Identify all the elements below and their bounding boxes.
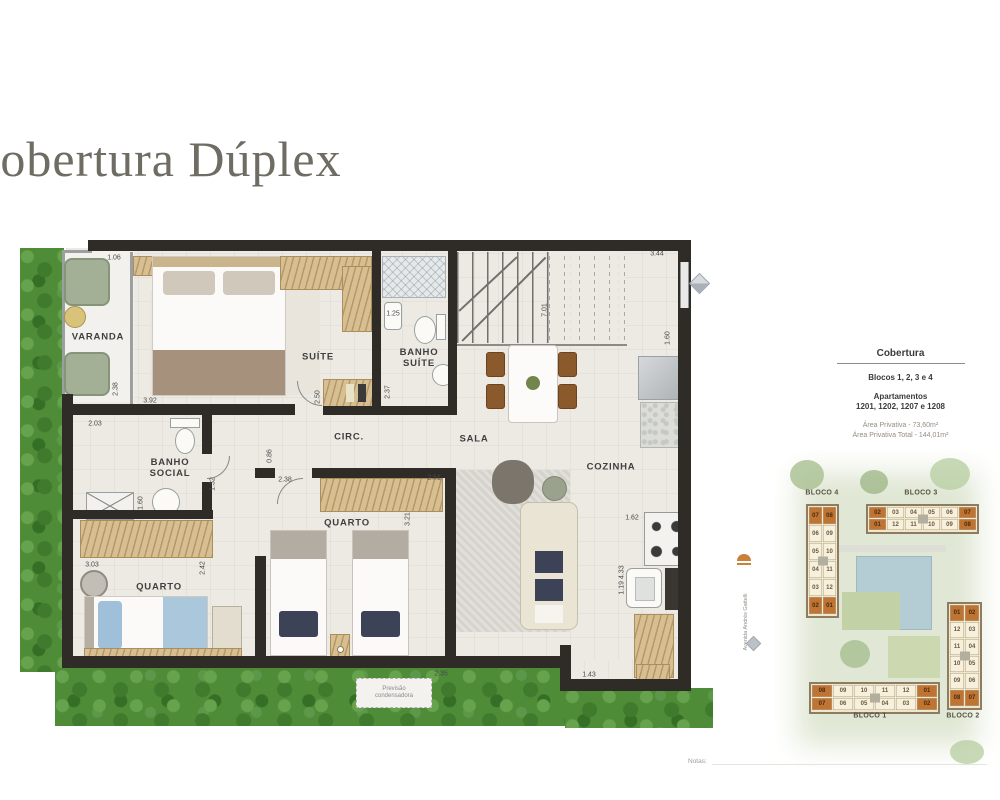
- dimension-label: 2.35: [434, 671, 448, 678]
- wardrobe-quarto-1: [80, 520, 213, 558]
- fridge: [638, 356, 680, 400]
- path: [838, 545, 946, 552]
- wall-bottom-right: [560, 679, 691, 691]
- siteplan-marker-icon: [737, 554, 751, 561]
- dining-chair: [558, 384, 577, 409]
- condenser-note: Previsão condensadora: [356, 678, 432, 708]
- toilet-tank: [170, 418, 200, 428]
- info-title: Cobertura: [828, 348, 973, 359]
- siteplan-row: 0102: [950, 605, 979, 621]
- siteplan-bloco-2: 010212031104100509060807: [947, 602, 982, 710]
- unit-bloco-3-03: 03: [887, 507, 904, 518]
- bed-blanket: [153, 350, 285, 395]
- room-label-suite: SUÍTE: [302, 352, 334, 363]
- grass-bottom-right: [565, 688, 713, 728]
- wall-banho-suite-left: [372, 251, 381, 415]
- siteplan-label-bloco-1: BLOCO 1: [853, 713, 886, 720]
- side-table-plant: [542, 476, 567, 501]
- room-label-varanda: VARANDA: [72, 332, 124, 343]
- bed-blanket: [353, 531, 408, 559]
- dimension-label: 3.03: [85, 562, 99, 569]
- unit-bloco-4-01: 01: [823, 597, 836, 614]
- grass-bottom: [55, 668, 567, 726]
- unit-bloco-4-12: 12: [823, 579, 836, 596]
- tree: [840, 640, 870, 668]
- unit-bloco-2-01: 01: [950, 605, 964, 621]
- unit-bloco-2-02: 02: [965, 605, 979, 621]
- siteplan-row: 1203: [950, 622, 979, 638]
- dimension-label: 0.86: [267, 449, 274, 463]
- armchair: [492, 460, 534, 504]
- dimension-label: 2.03: [88, 421, 102, 428]
- notes-label: Notas:: [688, 758, 707, 765]
- block-core: [918, 515, 928, 524]
- unit-bloco-4-02: 02: [809, 597, 822, 614]
- info-private-area-total: Área Privativa Total - 144,01m²: [828, 431, 973, 441]
- dimension-label: 1.62: [625, 515, 639, 522]
- wall-banho-suite-right: [448, 251, 457, 415]
- info-rule: [837, 363, 965, 364]
- dimension-label: 1.43: [582, 672, 596, 679]
- notes-faint-text: [712, 764, 987, 765]
- dimension-label: 2.37: [385, 385, 392, 399]
- dimension-label: 7.01: [542, 303, 549, 317]
- nightstand-left: [133, 256, 153, 276]
- unit-bloco-2-08: 08: [950, 690, 964, 706]
- info-blocks: Blocos 1, 2, 3 e 4: [828, 373, 973, 383]
- dimension-label: 1.32: [210, 477, 217, 491]
- tree: [790, 460, 824, 490]
- siteplan-label-bloco-4: BLOCO 4: [805, 490, 838, 497]
- bed-pillow: [223, 271, 275, 295]
- dimension-label: 1.60: [138, 496, 145, 510]
- cabinet-item: [346, 384, 354, 402]
- dimension-label: 2.42: [200, 561, 207, 575]
- spacer: [828, 383, 973, 392]
- unit-bloco-1-06: 06: [833, 698, 853, 710]
- info-private-area: Área Privativa - 73,60m²: [828, 421, 973, 431]
- unit-bloco-4-09: 09: [823, 525, 836, 542]
- suite-closet-vertical: [342, 266, 372, 332]
- unit-bloco-3-12: 12: [887, 519, 904, 530]
- quarto1-mirror: [80, 570, 108, 598]
- unit-bloco-1-01: 01: [917, 685, 937, 697]
- wall-suite-bottom: [73, 404, 295, 415]
- unit-bloco-1-02: 02: [917, 698, 937, 710]
- quarto2-bed: [270, 530, 327, 656]
- dimension-label: 1.19 4.33: [619, 565, 626, 594]
- unit-bloco-1-12: 12: [896, 685, 916, 697]
- room-label-circ: CIRC.: [334, 432, 364, 443]
- unit-bloco-2-09: 09: [950, 673, 964, 689]
- shower-box: [382, 256, 446, 298]
- unit-bloco-1-07: 07: [812, 698, 832, 710]
- lawn: [888, 636, 940, 678]
- unit-bloco-1-08: 08: [812, 685, 832, 697]
- siteplan-bloco-1: 080910111201070605040302: [809, 682, 940, 714]
- wall-quarto2-top: [255, 468, 275, 478]
- info-panel: Cobertura Blocos 1, 2, 3 e 4 Apartamento…: [828, 348, 973, 440]
- dimension-label: 2.51: [427, 475, 441, 482]
- room-label-quarto-1: QUARTO: [136, 582, 182, 593]
- page-title: Cobertura Dúplex: [0, 130, 342, 188]
- wall-banho-social-bottom: [73, 510, 213, 519]
- room-label-sala: SALA: [459, 434, 488, 445]
- lawn: [842, 592, 900, 630]
- quarto2-bed: [352, 530, 409, 656]
- toilet-bowl: [175, 428, 195, 454]
- siteplan-bloco-3: 020304050607011211100908: [866, 504, 979, 534]
- unit-bloco-3-01: 01: [869, 519, 886, 530]
- bed-blanket: [271, 531, 326, 559]
- quarto1-desk: [212, 606, 242, 650]
- stairs-treads-dashed: [549, 252, 625, 344]
- room-label-cozinha: COZINHA: [587, 462, 636, 473]
- dimension-label: 3.21: [405, 512, 412, 526]
- bed-headboard: [153, 257, 285, 267]
- tree: [930, 458, 970, 490]
- notes: Notas:: [688, 758, 707, 765]
- block-core: [818, 557, 828, 566]
- unit-bloco-3-08: 08: [959, 519, 976, 530]
- wall-quarto2-right: [445, 468, 456, 658]
- bed-headboard: [85, 597, 94, 653]
- sink-basin: [635, 577, 655, 601]
- sofa-throw: [535, 605, 563, 623]
- dimension-label: 1.25: [386, 311, 400, 318]
- unit-bloco-2-06: 06: [965, 673, 979, 689]
- dimension-label: 2.38: [113, 382, 120, 396]
- unit-bloco-4-03: 03: [809, 579, 822, 596]
- unit-bloco-2-03: 03: [965, 622, 979, 638]
- grass-left: [20, 248, 64, 672]
- block-core: [870, 694, 880, 703]
- varanda-armchair: [64, 352, 110, 396]
- window-right: [680, 262, 689, 308]
- suite-double-bed: [152, 256, 286, 396]
- room-label-quarto-2: QUARTO: [324, 518, 370, 529]
- siteplan-row: 0807: [950, 690, 979, 706]
- varanda-armchair: [64, 258, 110, 306]
- table-plant: [526, 376, 540, 390]
- unit-bloco-4-07: 07: [809, 507, 822, 524]
- unit-bloco-3-06: 06: [941, 507, 958, 518]
- dimension-label: 1.60: [665, 331, 672, 345]
- unit-bloco-3-02: 02: [869, 507, 886, 518]
- siteplan-bloco-4: 070806090510041103120201: [806, 504, 839, 618]
- siteplan-row: 0906: [950, 673, 979, 689]
- siteplan-row: 0201: [809, 597, 836, 614]
- unit-bloco-4-06: 06: [809, 525, 822, 542]
- dining-chair: [558, 352, 577, 377]
- tree: [950, 740, 984, 764]
- wall-closet-bottom: [323, 406, 457, 415]
- varanda-table: [64, 306, 86, 328]
- siteplan-row: 0708: [809, 507, 836, 524]
- wall-left: [62, 394, 73, 668]
- dining-chair: [486, 352, 505, 377]
- dimension-label: 3.92: [143, 398, 157, 405]
- unit-bloco-2-07: 07: [965, 690, 979, 706]
- wardrobe-quarto-2: [320, 478, 443, 512]
- spacer: [828, 412, 973, 421]
- sofa: [520, 502, 578, 630]
- quarto1-bed: [84, 596, 208, 654]
- siteplan-row: 0312: [809, 579, 836, 596]
- sofa-cushion: [535, 579, 563, 601]
- sofa-cushion: [535, 551, 563, 573]
- dimension-label: 1.06: [107, 255, 121, 262]
- kitchen-sink: [626, 568, 662, 608]
- info-apartments-numbers: 1201, 1202, 1207 e 1208: [828, 402, 973, 412]
- unit-bloco-3-09: 09: [941, 519, 958, 530]
- siteplan-label-bloco-3: BLOCO 3: [904, 490, 937, 497]
- unit-bloco-2-12: 12: [950, 622, 964, 638]
- unit-bloco-3-07: 07: [959, 507, 976, 518]
- unit-bloco-4-08: 08: [823, 507, 836, 524]
- room-label-banho-suite: BANHO SUÍTE: [400, 347, 439, 369]
- north-compass-icon: [689, 273, 710, 294]
- nightstand-knob: [337, 646, 344, 653]
- unit-bloco-1-09: 09: [833, 685, 853, 697]
- room-label-banho-social: BANHO SOCIAL: [150, 457, 191, 479]
- bed-pillow: [279, 611, 318, 637]
- bed-pillow: [163, 271, 215, 295]
- wall-banho-social-right: [202, 408, 212, 454]
- bed-pillow: [98, 601, 122, 649]
- toilet-tank: [436, 314, 446, 340]
- wall-top: [88, 240, 688, 251]
- dimension-label: 2.38: [278, 477, 292, 484]
- dimension-label: 3.44: [650, 251, 664, 258]
- cabinet-item: [358, 384, 366, 402]
- siteplan-row: 0609: [809, 525, 836, 542]
- info-apartments-label: Apartamentos: [828, 392, 973, 402]
- wall-quartos-divider: [255, 556, 266, 658]
- wall-bottom: [62, 656, 562, 668]
- tree: [860, 470, 888, 494]
- dining-chair: [486, 384, 505, 409]
- dimension-label: 2.50: [315, 390, 322, 404]
- siteplan-label-bloco-2: BLOCO 2: [946, 713, 979, 720]
- bed-blanket: [163, 597, 207, 653]
- bed-pillow: [361, 611, 400, 637]
- block-core: [960, 652, 970, 661]
- page: Cobertura Dúplex: [0, 0, 1000, 800]
- siteplan-marker-icon: [737, 563, 751, 565]
- toilet-bowl: [414, 316, 436, 344]
- unit-bloco-1-03: 03: [896, 698, 916, 710]
